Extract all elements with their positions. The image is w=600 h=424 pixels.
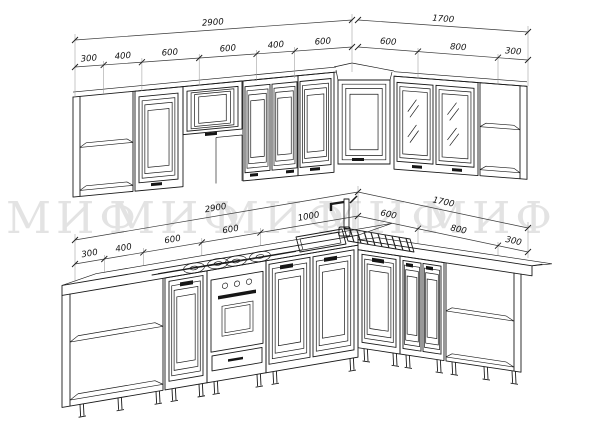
upper-corner-shelf-unit-right [480,83,527,180]
oven-handle [218,289,256,299]
leg [213,381,220,395]
upper-two-door-cabinet-600 [243,76,298,181]
oven-window-inner [225,305,250,333]
dimension-label: 300 [80,53,98,64]
lower-door-cabinet-600-right [358,250,400,367]
upper-door-cabinet-400 [135,87,183,192]
dimension-label: 600 [164,234,182,247]
lower-corner-shelf-unit [62,278,163,420]
oven-window [222,301,253,336]
leg [451,362,458,376]
watermark: МИФ МИФ МИФ МИФ МИФ [6,193,557,244]
dimension-label: 300 [81,248,99,261]
oven [211,271,263,352]
dimension-label: 600 [380,37,398,48]
upper-right-run [394,72,527,180]
dimension-label: 400 [115,242,133,255]
oven-knob [246,279,251,285]
upper-left-run [73,67,336,197]
kitchen-technical-drawing: МИФ МИФ МИФ МИФ МИФ [0,0,600,424]
upper-corner-shelf-unit [73,91,133,197]
cabinet-door [169,275,203,381]
cabinet-door [313,250,354,357]
dimension-label: 600 [219,43,237,54]
oven-knob [222,283,227,289]
lower-left-run [62,223,392,420]
cabinet-door [403,260,421,351]
dimension-label: 800 [450,42,468,53]
dimension-label: 2900 [202,17,225,29]
leg [79,403,86,417]
dimension-label: 300 [505,46,523,57]
lower-door-cabinet-400 [165,271,207,403]
oven-knob [234,281,239,287]
dimension-label: 400 [114,51,132,62]
lower-corner-shelf-unit-right [446,263,521,385]
cabinet-door [245,84,270,172]
leg [436,359,443,373]
leg [155,390,162,404]
door-handle [352,158,364,161]
door-handle [412,165,422,169]
leg [256,373,263,387]
leg [483,366,490,380]
cabinet-door [269,257,310,364]
door-handle [310,167,320,171]
sink-cabinet-1000 [266,245,358,385]
flip-up-door [187,86,238,131]
upper-corner-cabinet [334,63,394,164]
leg [272,371,279,385]
oven-cabinet-600 [207,261,266,396]
cabinet-door [300,79,331,168]
leg [198,383,205,397]
cabinet-door [272,82,297,170]
drawer-handle [228,357,243,362]
upper-flip-up-cabinet-600 [183,81,242,187]
lower-two-door-cabinet-800 [400,256,444,373]
upper-door-cabinet-400b [298,72,334,175]
corner-cabinet-door [338,80,390,164]
leg [117,397,124,411]
door-handle [286,170,294,174]
dimension-label: 600 [161,47,179,58]
lower-right-run [358,235,552,390]
cabinet-door [139,93,178,183]
door-handle [250,173,258,177]
cabinet-door [362,254,396,347]
dimension-label: 600 [314,36,332,47]
door-handle [151,182,162,186]
glass-cabinet-door [397,82,433,164]
kitchen-drawing-canvas: МИФ МИФ МИФ МИФ МИФ [0,0,600,424]
upper-cabinets-row [73,63,527,197]
leg [171,388,178,402]
leg [392,353,399,367]
dimension-label: 1700 [432,14,455,26]
upper-glass-cabinet-800 [394,76,478,175]
leg [363,348,370,362]
leg [405,355,412,369]
door-handle [452,168,462,172]
dimension-label: 300 [504,235,523,248]
leg [511,371,518,385]
cabinet-door [423,263,441,354]
leg [349,357,356,371]
glass-cabinet-door [436,85,474,167]
dimension-label: 400 [267,40,285,51]
